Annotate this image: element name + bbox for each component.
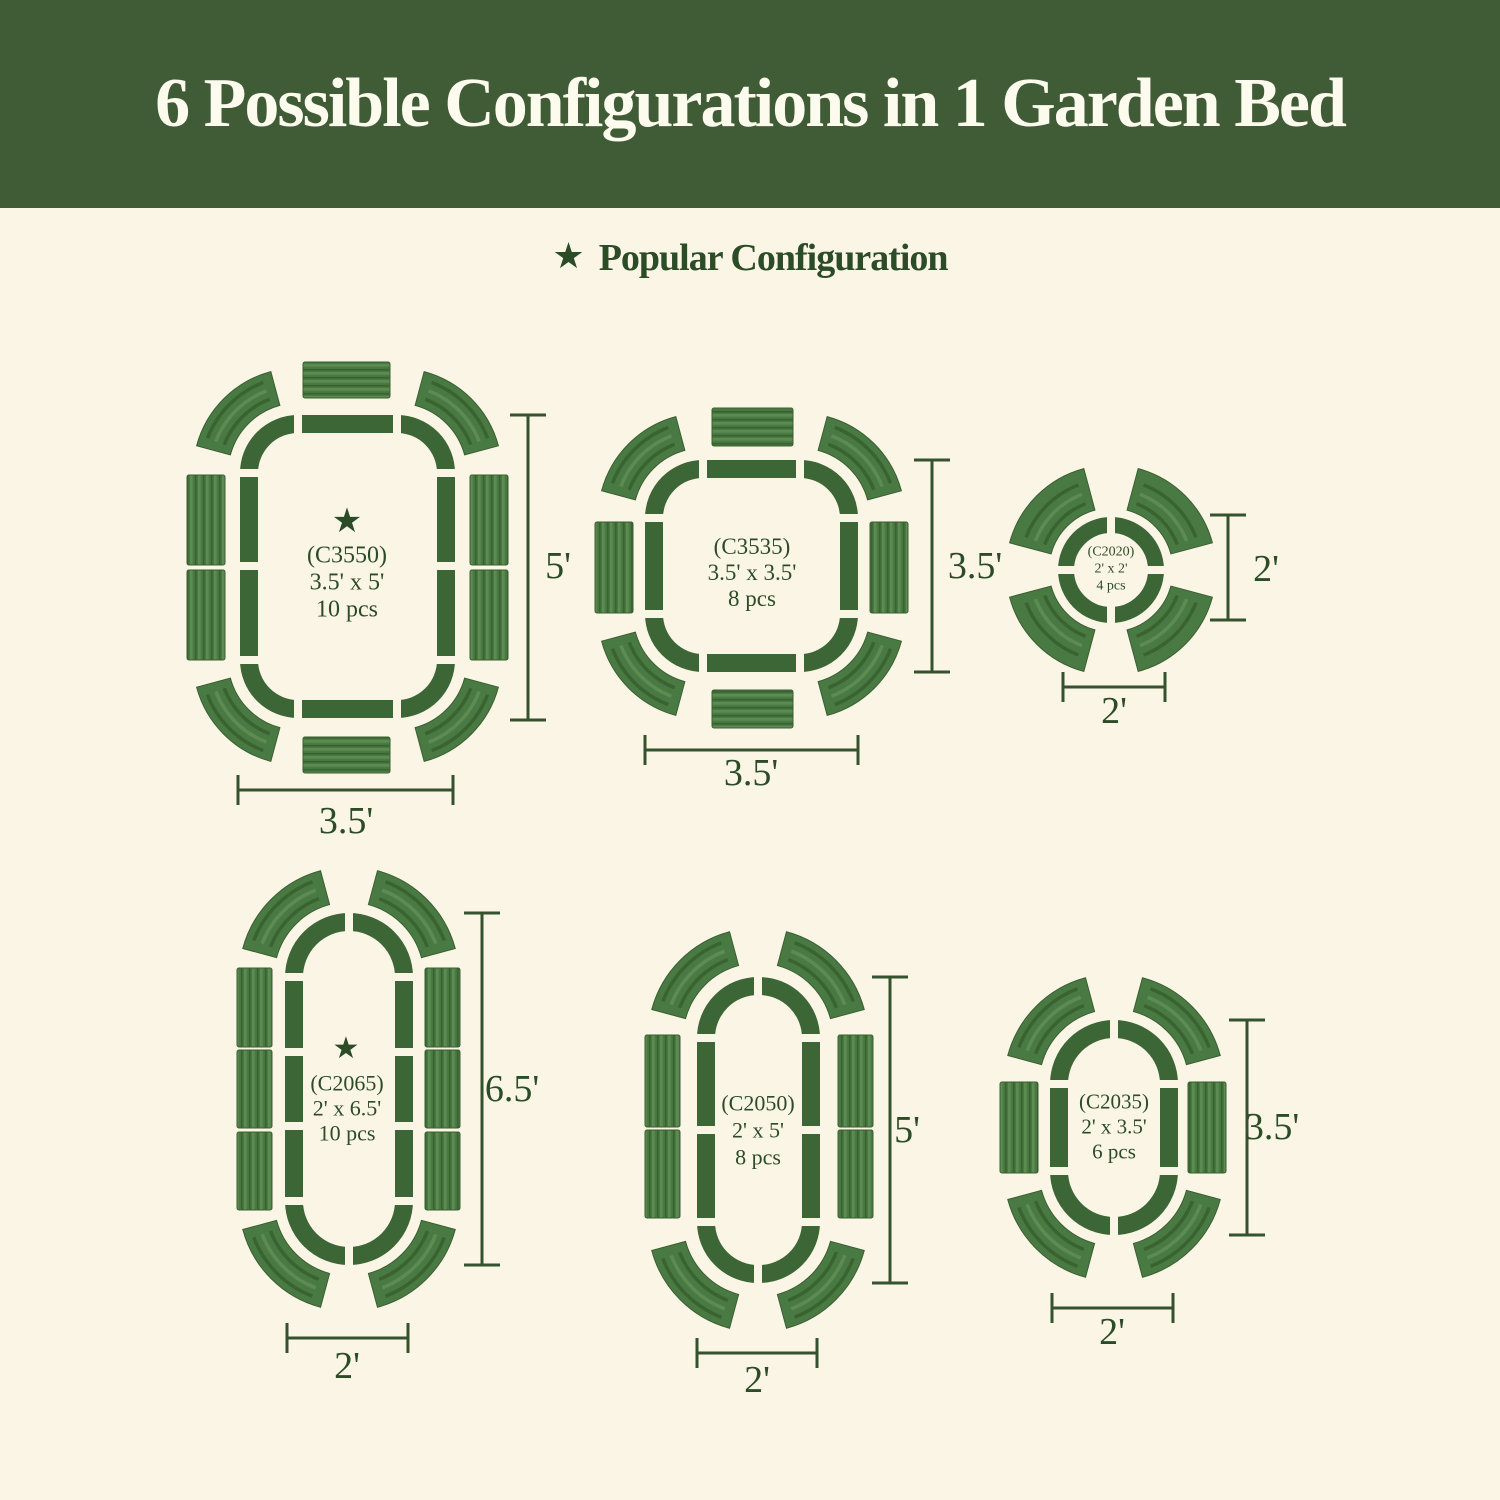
config-info: (C2050) 2' x 5' 8 pcs bbox=[721, 1090, 794, 1171]
popular-star-icon: ★ bbox=[332, 505, 362, 539]
config-pieces: 6 pcs bbox=[1079, 1140, 1149, 1165]
horizontal-dim-label: 2' bbox=[1099, 1310, 1125, 1354]
c2020-diagram bbox=[990, 450, 1310, 740]
config-size: 3.5' x 5' bbox=[307, 570, 387, 597]
config-info: (C2020) 2' x 2' 4 pcs bbox=[1088, 544, 1135, 595]
config-info: (C2035) 2' x 3.5' 6 pcs bbox=[1079, 1090, 1149, 1165]
config-code: (C3550) bbox=[307, 543, 387, 570]
config-pieces: 10 pcs bbox=[307, 597, 387, 624]
page-title: 6 Possible Configurations in 1 Garden Be… bbox=[155, 64, 1345, 144]
header-banner: 6 Possible Configurations in 1 Garden Be… bbox=[0, 0, 1500, 208]
config-info: (C3550) 3.5' x 5' 10 pcs bbox=[307, 543, 387, 624]
c2065-diagram bbox=[180, 860, 600, 1390]
config-pieces: 8 pcs bbox=[708, 586, 797, 612]
config-pieces: 4 pcs bbox=[1088, 578, 1135, 595]
vertical-dim-label: 5' bbox=[894, 1108, 920, 1152]
config-info: (C3535) 3.5' x 3.5' 8 pcs bbox=[708, 534, 797, 612]
vertical-dim-label: 6.5' bbox=[485, 1067, 539, 1111]
config-pieces: 10 pcs bbox=[310, 1121, 383, 1146]
popular-star-icon: ★ bbox=[333, 1034, 360, 1064]
horizontal-dim-label: 2' bbox=[1101, 689, 1127, 733]
c3535-diagram bbox=[570, 390, 1050, 790]
config-size: 3.5' x 3.5' bbox=[708, 560, 797, 586]
vertical-dim-label: 5' bbox=[545, 544, 571, 588]
legend-label: Popular Configuration bbox=[599, 236, 948, 280]
horizontal-dim-label: 3.5' bbox=[319, 799, 373, 843]
horizontal-dim-label: 2' bbox=[334, 1344, 360, 1388]
config-code: (C2035) bbox=[1079, 1090, 1149, 1115]
config-pieces: 8 pcs bbox=[721, 1144, 794, 1171]
infographic-canvas: 6 Possible Configurations in 1 Garden Be… bbox=[0, 0, 1500, 1500]
config-code: (C3535) bbox=[708, 534, 797, 560]
c2035-diagram bbox=[960, 960, 1340, 1360]
vertical-dim-label: 2' bbox=[1253, 547, 1279, 591]
vertical-dim-label: 3.5' bbox=[1245, 1105, 1299, 1149]
config-size: 2' x 5' bbox=[721, 1117, 794, 1144]
config-info: (C2065) 2' x 6.5' 10 pcs bbox=[310, 1071, 383, 1146]
config-size: 2' x 3.5' bbox=[1079, 1115, 1149, 1140]
config-code: (C2050) bbox=[721, 1090, 794, 1117]
star-icon: ★ bbox=[552, 238, 584, 274]
horizontal-dim-label: 3.5' bbox=[724, 751, 778, 795]
config-code: (C2065) bbox=[310, 1071, 383, 1096]
popular-legend: ★ Popular Configuration bbox=[0, 236, 1500, 280]
config-size: 2' x 6.5' bbox=[310, 1096, 383, 1121]
config-size: 2' x 2' bbox=[1088, 561, 1135, 578]
horizontal-dim-label: 2' bbox=[744, 1358, 770, 1402]
config-code: (C2020) bbox=[1088, 544, 1135, 561]
